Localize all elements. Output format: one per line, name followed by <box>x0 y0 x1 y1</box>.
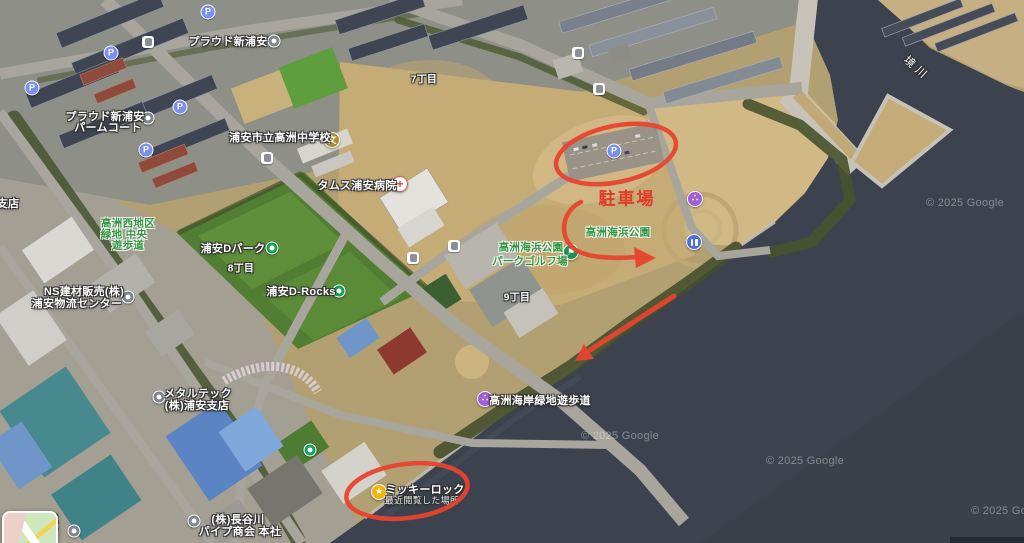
district-label-9chome: 9丁目 <box>504 289 530 304</box>
google-watermark: © 2025 Google <box>971 505 1024 517</box>
attraction-glyph: ∴ <box>692 194 698 204</box>
poi-sublabel-recently-viewed: 最近閲覧した場所 <box>385 494 459 507</box>
bus-glyph <box>145 38 152 46</box>
restroom-icon[interactable] <box>686 234 702 250</box>
bus-glyph <box>596 85 603 93</box>
bus-glyph <box>410 254 417 262</box>
park-label-takasu-kaihin-park[interactable]: 高洲海浜公園 <box>586 225 651 240</box>
bus-glyph <box>451 242 458 250</box>
parking-glyph: P <box>108 49 114 58</box>
poi-label-ns-kenzai-line2[interactable]: 浦安物流センター <box>32 295 122 311</box>
parking-glyph: P <box>611 147 617 156</box>
bus-glyph <box>575 49 582 57</box>
bottom-overlay-edge <box>950 537 1024 543</box>
poi-label-partial-shiten[interactable]: 支店 <box>0 195 19 211</box>
bus-glyph <box>264 154 271 162</box>
attraction-glyph: ∴ <box>482 394 488 404</box>
attraction-icon[interactable]: ∴ <box>687 191 703 207</box>
poi-pin-icon[interactable] <box>68 525 81 538</box>
pin-dot <box>192 519 197 524</box>
parking-icon-circled[interactable]: P <box>607 144 622 159</box>
parking-icon[interactable]: P <box>173 100 188 115</box>
parking-icon[interactable]: P <box>104 46 119 61</box>
pin-dot <box>308 448 313 453</box>
google-watermark: © 2025 Google <box>581 430 659 442</box>
pin-dot <box>272 39 277 44</box>
poi-label-urayasu-d-park[interactable]: 浦安Dパーク <box>201 240 266 256</box>
poi-label-urayasu-d-rocks[interactable]: 浦安D-Rocks <box>266 283 335 299</box>
sports-pin-icon[interactable] <box>304 444 317 457</box>
hospital-cross-glyph: + <box>396 178 403 190</box>
poi-label-proud-shin-urayasu[interactable]: プラウド新浦安 <box>188 33 267 49</box>
park-label-west-greenway-line3[interactable]: 遊歩道 <box>112 238 144 253</box>
annotation-text-parking: 駐車場 <box>599 185 656 210</box>
parking-glyph: P <box>177 103 183 112</box>
park-label-park-golf-line2[interactable]: パークゴルフ場 <box>492 254 568 269</box>
google-watermark: © 2025 Google <box>926 197 1004 209</box>
poi-label-coast-walkway[interactable]: 高洲海岸緑地遊歩道 <box>489 392 591 408</box>
poi-label-takasu-junior-high[interactable]: 浦安市立高洲中学校 <box>229 129 331 145</box>
bus-stop-icon[interactable] <box>142 36 154 48</box>
poi-label-tams-hospital[interactable]: タムス浦安病院 <box>317 177 396 193</box>
parking-icon[interactable]: P <box>25 81 40 96</box>
district-label-7chome: 7丁目 <box>411 71 437 86</box>
map-style-thumbnail[interactable] <box>2 511 58 543</box>
bus-stop-icon[interactable] <box>261 152 273 164</box>
pin-dot <box>126 295 131 300</box>
pin-dot <box>146 116 151 121</box>
district-label-8chome: 8丁目 <box>228 260 254 275</box>
star-glyph: ★ <box>375 487 383 496</box>
pin-dot <box>72 529 77 534</box>
park-label-park-golf-line1[interactable]: 高洲海浜公園 <box>499 240 564 255</box>
google-watermark: © 2025 Google <box>766 455 844 467</box>
pin-dot <box>337 289 342 294</box>
poi-label-metaltech-line2[interactable]: (株)浦安支店 <box>165 397 229 413</box>
poi-label-hasegawa-line2[interactable]: パイプ商会 本社 <box>199 523 281 539</box>
parking-icon[interactable]: P <box>201 5 216 20</box>
satellite-imagery <box>0 0 1024 543</box>
pin-dot <box>270 246 275 251</box>
parking-glyph: P <box>143 146 149 155</box>
pin-dot <box>157 395 162 400</box>
bus-stop-icon[interactable] <box>407 252 419 264</box>
poi-label-proud-palm-court-line2[interactable]: パームコート <box>74 119 141 135</box>
poi-pin-icon[interactable] <box>268 35 281 48</box>
parking-glyph: P <box>205 8 211 17</box>
sports-pin-icon[interactable] <box>266 242 279 255</box>
bus-stop-icon[interactable] <box>572 47 584 59</box>
map-canvas[interactable]: P P P P P P + 文 ⚑ ∴ ∴ ★ プラウド新浦安 プラウド新浦安 … <box>0 0 1024 543</box>
bus-stop-icon[interactable] <box>593 83 605 95</box>
parking-glyph: P <box>29 84 35 93</box>
restroom-glyph <box>691 239 698 246</box>
parking-icon[interactable]: P <box>139 143 154 158</box>
bus-stop-icon[interactable] <box>448 240 460 252</box>
